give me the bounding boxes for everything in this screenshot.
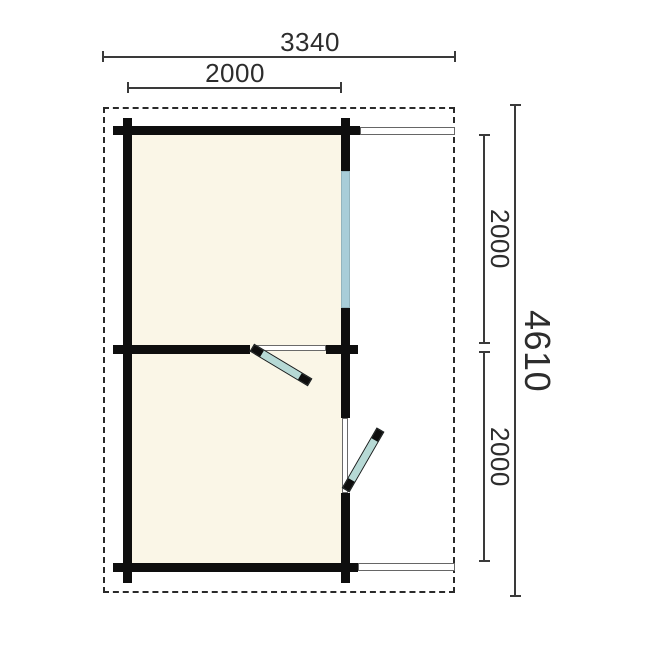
wall-bottom [113, 563, 358, 572]
dim-label-room-top-depth: 2000 [487, 135, 513, 343]
dim-line [514, 105, 516, 597]
wall-right-upper [341, 118, 350, 171]
wall-partition-left [113, 345, 250, 354]
dim-label-overall-depth: 4610 [517, 105, 555, 597]
dim-label-cabin-width: 2000 [165, 60, 305, 86]
terrace-beam-bottom [358, 563, 455, 571]
dim-tick [340, 82, 342, 93]
dim-label-overall-width: 3340 [240, 29, 380, 55]
dim-tick [127, 82, 129, 93]
floor-plan-canvas: 3340 2000 2000 2000 4610 [0, 0, 648, 648]
window [341, 171, 350, 308]
terrace-beam-top [360, 127, 455, 135]
wall-top [113, 126, 360, 135]
dim-tick [454, 51, 456, 62]
dim-line [103, 56, 455, 58]
wall-partition-right [326, 345, 358, 354]
dim-tick [102, 51, 104, 62]
dim-label-room-bottom-depth: 2000 [487, 352, 513, 561]
wall-right-middle [341, 308, 350, 418]
